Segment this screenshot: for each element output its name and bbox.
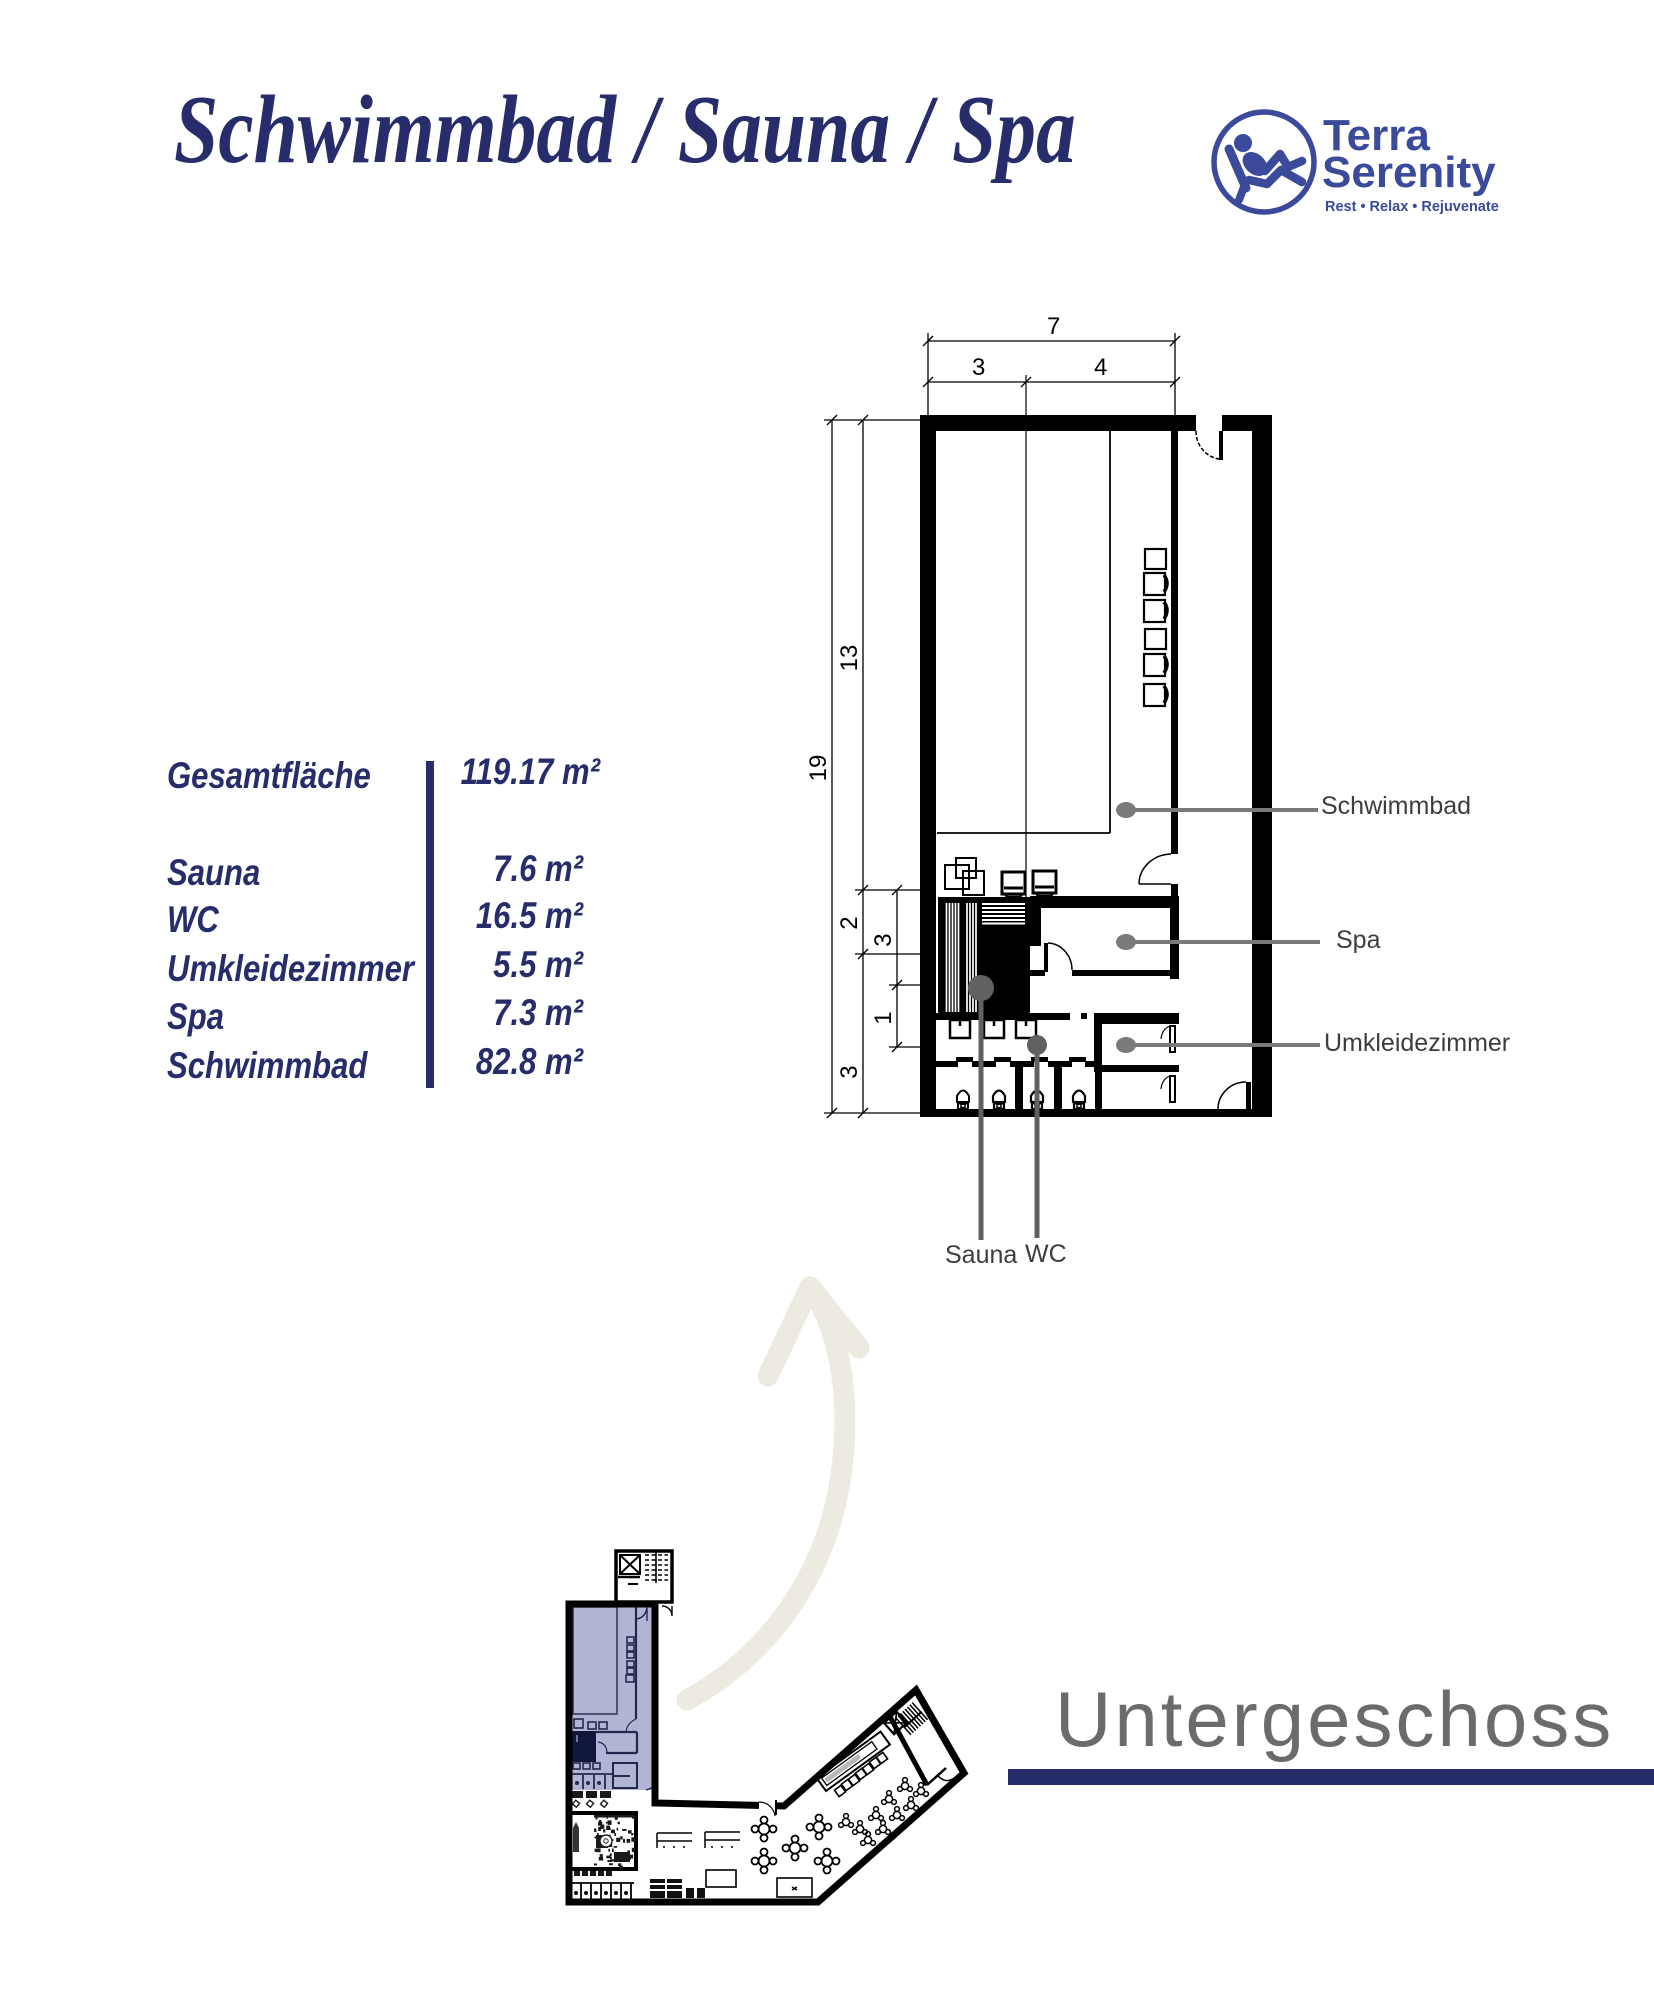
svg-text:3: 3 — [836, 1065, 863, 1078]
svg-text:7: 7 — [1047, 313, 1060, 340]
svg-text:4: 4 — [1094, 354, 1107, 381]
svg-text:1: 1 — [870, 1011, 897, 1024]
svg-text:13: 13 — [836, 645, 863, 672]
svg-text:19: 19 — [805, 755, 832, 782]
svg-text:3: 3 — [870, 933, 897, 946]
svg-text:3: 3 — [972, 354, 985, 381]
svg-text:2: 2 — [836, 916, 863, 929]
